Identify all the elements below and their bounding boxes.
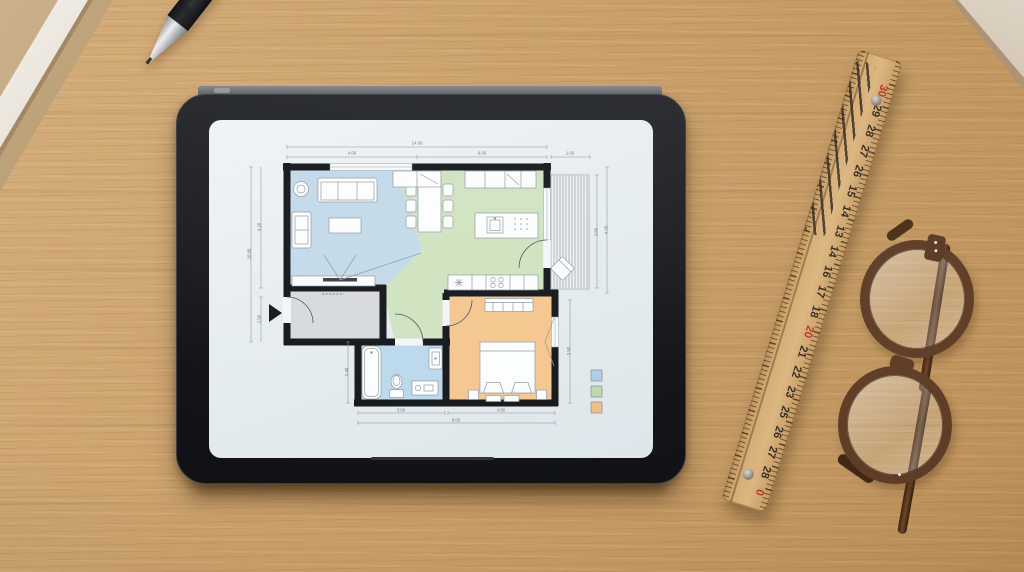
eyeglasses (830, 215, 990, 515)
dim-left-lower: 1.50 (257, 314, 262, 323)
dim-right-outer: 4.20 (604, 225, 609, 234)
legend-swatch-bedroom[interactable] (591, 402, 602, 413)
dim-bottom-total: 8.00 (452, 418, 461, 423)
legend-swatch-living[interactable] (591, 370, 602, 381)
floor-plan-app: 14.00 4.00 6.00 1.60 10.60 4.20 1.50 3.8… (180, 90, 680, 490)
dim-left-upper: 4.20 (257, 222, 262, 231)
dim-bedroom-right: 3.50 (566, 346, 571, 355)
glasses-lens-lower (838, 366, 952, 484)
room-hallway[interactable] (287, 288, 383, 342)
glasses-rivet-dot (934, 241, 938, 245)
legend (591, 370, 602, 413)
dim-left-total: 10.60 (247, 248, 252, 259)
kraft-notebook-corner (0, 0, 130, 210)
linen-book-corner (944, 0, 1024, 110)
dim-bath-left: 2.40 (344, 367, 349, 376)
glasses-rivet-dot (934, 249, 938, 253)
glasses-temple-tip (885, 217, 915, 242)
dim-bottom-bath: 3.00 (397, 408, 406, 413)
book-cover (944, 0, 1024, 110)
dim-right-inner: 3.80 (594, 227, 599, 236)
entrance-arrow-icon (269, 304, 282, 322)
legend-swatch-kitchen[interactable] (591, 386, 602, 397)
terrace[interactable] (548, 175, 589, 289)
glasses-lens-upper (860, 240, 974, 358)
dim-bottom-bed: 4.60 (497, 408, 506, 413)
glasses-rivet-dot (898, 473, 901, 476)
dim-top-total: 14.00 (412, 141, 423, 146)
dim-top-left: 4.00 (348, 151, 357, 156)
dim-terrace: 1.60 (566, 151, 575, 156)
dim-top-right: 6.00 (478, 151, 487, 156)
